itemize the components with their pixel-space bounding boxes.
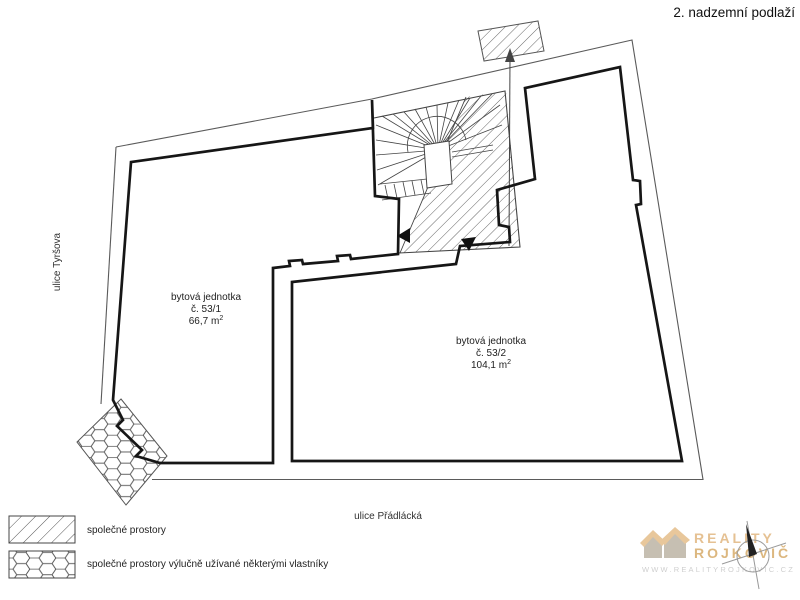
unit-53-1-label: bytová jednotka č. 53/1 66,7 m2 [171, 292, 241, 327]
unit-53-2-number: č. 53/2 [476, 348, 506, 359]
legend: společné prostory společné prostory výlu… [9, 516, 328, 578]
agency-watermark: REALITY ROJKOVIČ WWW.REALITYROJKOVIC.CZ [640, 521, 795, 589]
agency-website: WWW.REALITYROJKOVIC.CZ [642, 565, 795, 574]
unit-53-2-label: bytová jednotka č. 53/2 104,1 m2 [456, 336, 526, 371]
unit-53-1-area: 66,7 m2 [189, 315, 224, 327]
legend-swatch-common-areas [9, 516, 75, 543]
agency-house-icon [640, 527, 690, 558]
floor-plan-page: 2. nadzemní podlaží ulice Tyršova ulice … [0, 0, 800, 600]
outer-boundary [101, 40, 703, 480]
floor-plan-drawing: 2. nadzemní podlaží ulice Tyršova ulice … [0, 0, 800, 600]
common-space-hatch [400, 91, 520, 253]
unit-53-1-walls [113, 100, 399, 463]
legend-label-exclusive-common-areas: společné prostory výlučně užívané někter… [87, 559, 328, 570]
page-title: 2. nadzemní podlaží [673, 5, 795, 20]
unit-53-2-name: bytová jednotka [456, 336, 526, 347]
unit-53-1-name: bytová jednotka [171, 292, 241, 303]
unit-53-1-number: č. 53/1 [191, 304, 221, 315]
stairwell [374, 91, 520, 253]
unit-53-2-area: 104,1 m2 [471, 359, 511, 371]
legend-swatch-exclusive-common-areas [9, 551, 75, 578]
street-label-bottom: ulice Přádlácká [354, 511, 422, 522]
legend-label-common-areas: společné prostory [87, 525, 166, 536]
shared-hex-area [77, 399, 167, 505]
stair-core [424, 141, 452, 188]
street-label-left: ulice Tyršova [52, 232, 63, 291]
